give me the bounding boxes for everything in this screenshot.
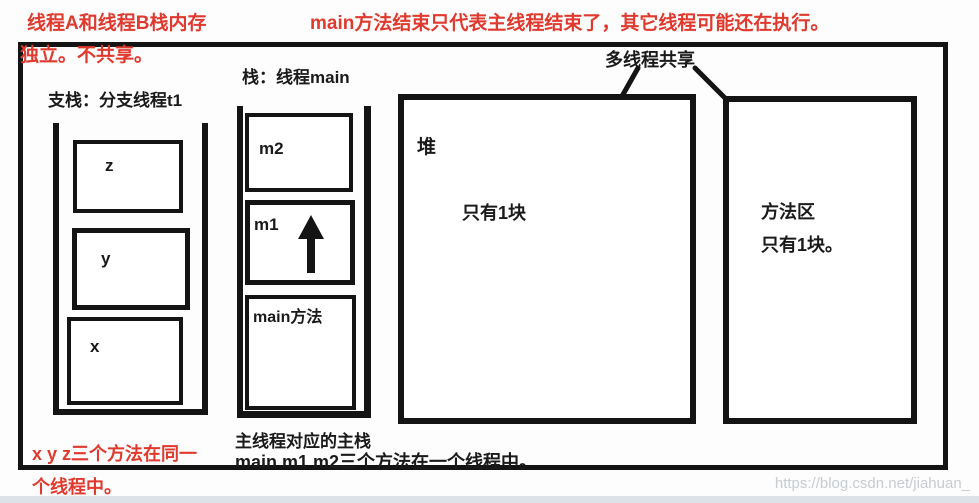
note-xyz-same-thread-line1: x y z三个方法在同一	[32, 440, 197, 466]
frame-m1-label: m1	[254, 215, 279, 235]
branch-stack-title: 支栈：分支线程t1	[48, 86, 182, 111]
csdn-watermark: https://blog.csdn.net/jiahuan_	[760, 475, 970, 492]
stack-frame-x: x	[67, 317, 183, 405]
note-thread-stack-independent-line1: 线程A和线程B栈内存	[27, 8, 206, 35]
main-stack-title: 栈：线程main	[242, 63, 350, 88]
stack-frame-y: y	[72, 228, 190, 310]
method-area-line1: 方法区	[761, 196, 843, 229]
frame-main-label: main方法	[253, 303, 322, 327]
note-thread-stack-independent-line2: 独立。不共享。	[20, 40, 153, 67]
heap-label: 堆	[417, 132, 436, 159]
heap-box: 堆 只有1块	[398, 94, 696, 424]
stack-frame-m2: m2	[245, 113, 353, 192]
method-area-box: 方法区 只有1块。	[723, 96, 917, 424]
method-area-text: 方法区 只有1块。	[761, 196, 843, 262]
frame-m2-label: m2	[259, 139, 284, 159]
note-xyz-same-thread-line2: 个线程中。	[32, 473, 122, 499]
stack-frame-main: main方法	[245, 295, 356, 410]
stack-frame-z: z	[73, 140, 183, 213]
heap-note: 只有1块	[462, 199, 526, 225]
note-main-method-end: main方法结束只代表主线程结束了，其它线程可能还在执行。	[310, 8, 829, 35]
up-arrow-icon	[294, 213, 328, 277]
method-area-line2: 只有1块。	[761, 229, 843, 262]
frame-z-label: z	[105, 156, 114, 176]
frame-x-label: x	[90, 337, 99, 357]
diagram-canvas: 线程A和线程B栈内存 独立。不共享。 main方法结束只代表主线程结束了，其它线…	[0, 0, 979, 503]
frame-y-label: y	[101, 249, 110, 269]
stack-frame-m1: m1	[245, 200, 355, 285]
main-stack-caption-line2: main m1 m2三个方法在一个线程中。	[235, 448, 537, 474]
bottom-edge-strip	[0, 496, 979, 503]
